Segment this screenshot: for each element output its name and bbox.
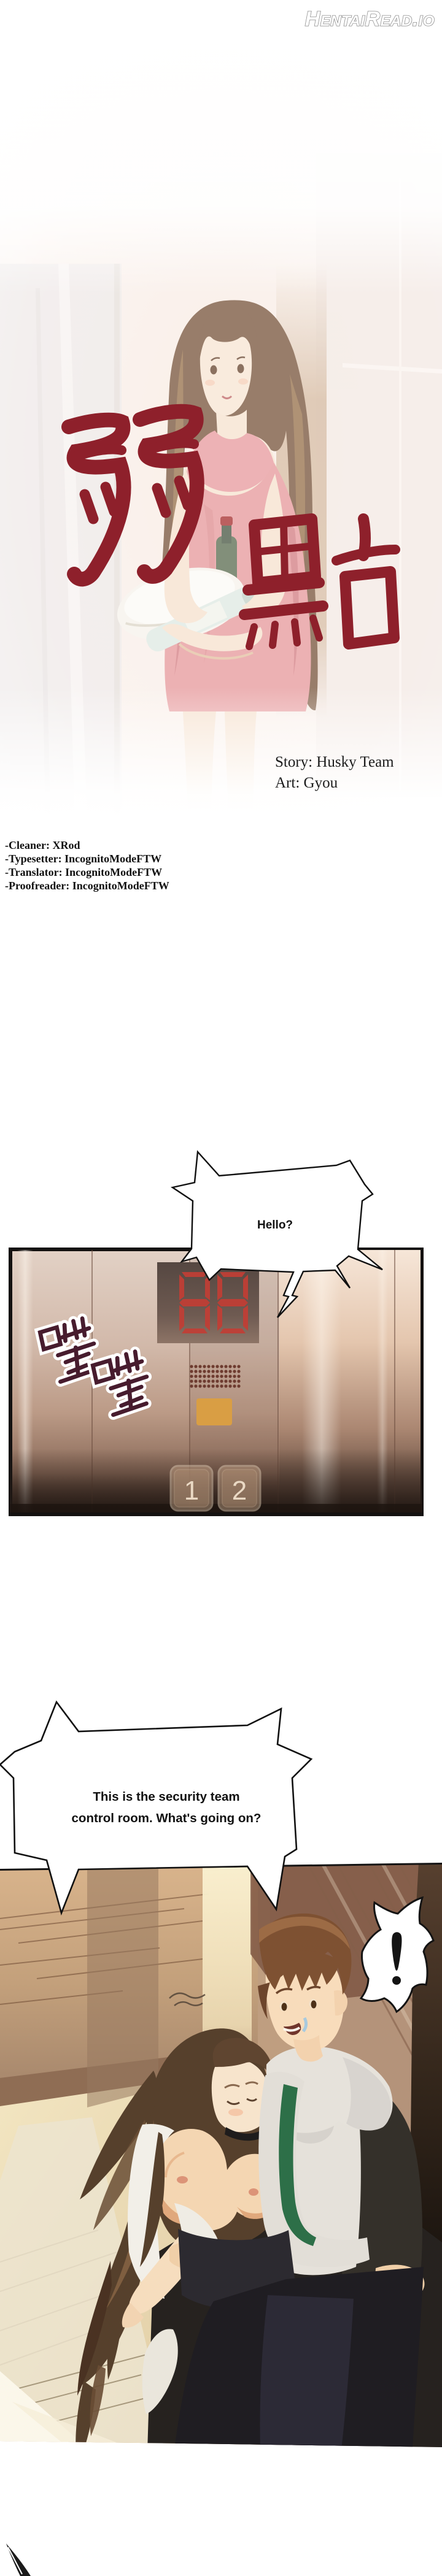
svg-text:2: 2 <box>232 1476 247 1506</box>
svg-text:This is the security team: This is the security team <box>93 1790 239 1804</box>
svg-text:Hello?: Hello? <box>257 1219 293 1232</box>
svg-text:control room. What's going on?: control room. What's going on? <box>72 1811 262 1825</box>
svg-text:1: 1 <box>184 1476 199 1506</box>
svg-text:HentaiRead.io: HentaiRead.io <box>305 7 435 31</box>
